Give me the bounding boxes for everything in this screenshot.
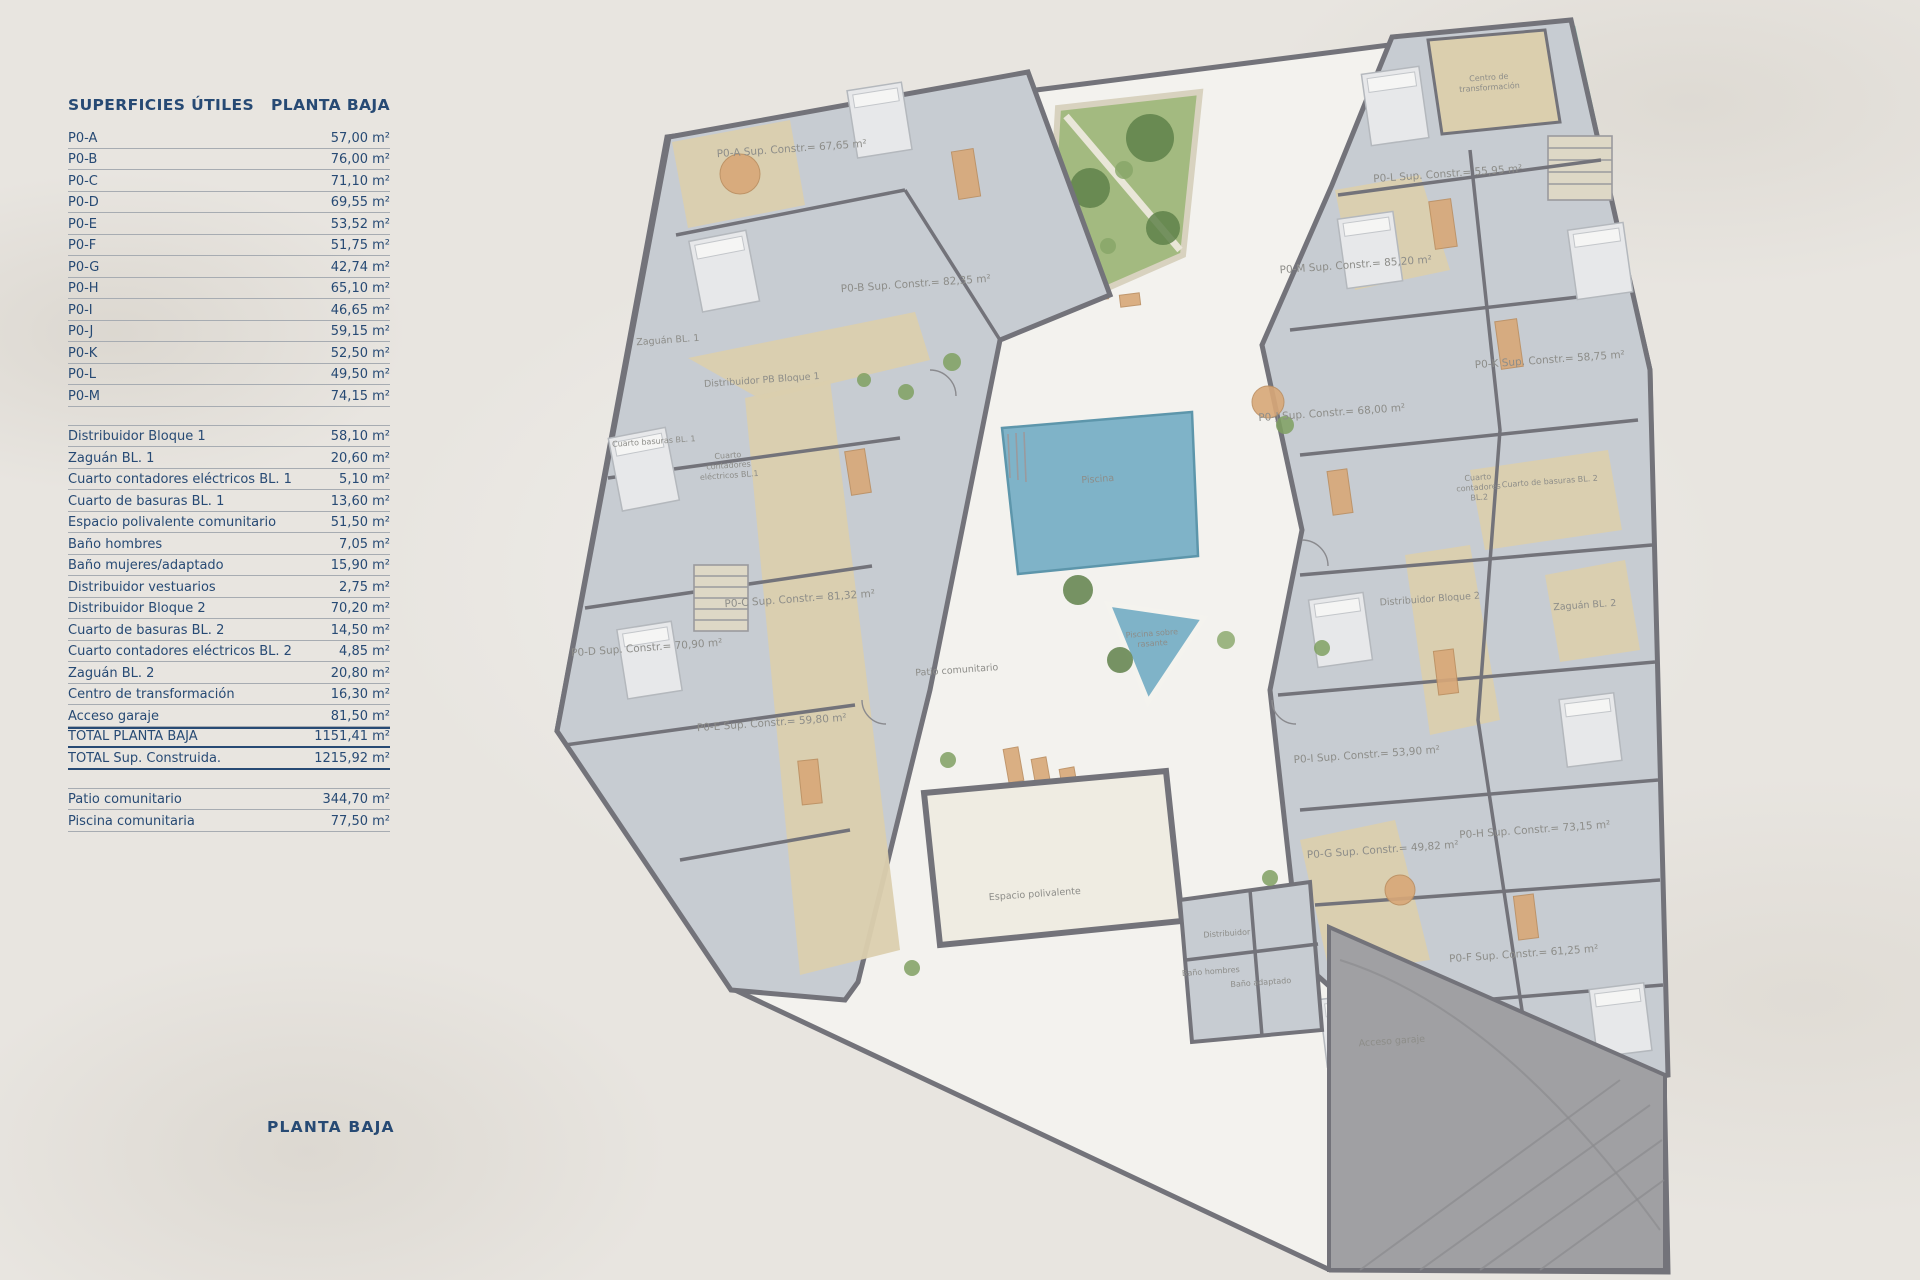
- page: SUPERFICIES ÚTILES PLANTA BAJA P0-A 57,0…: [0, 0, 1920, 1280]
- floor-plan: P0-A Sup. Constr.= 67,65 m²P0-B Sup. Con…: [0, 0, 1920, 1280]
- floor-plan-svg: P0-A Sup. Constr.= 67,65 m²P0-B Sup. Con…: [0, 0, 1920, 1280]
- plan-label: Piscina: [1081, 473, 1115, 486]
